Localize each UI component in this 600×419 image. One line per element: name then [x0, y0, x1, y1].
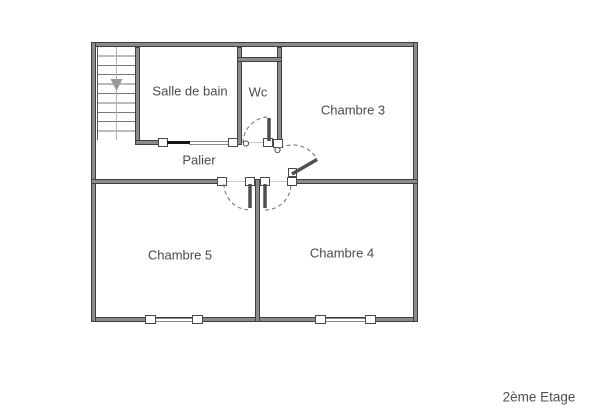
- bedroom-divider-wall: [255, 179, 260, 322]
- chambre5-door-opening: [226, 181, 246, 182]
- room-label-chambre-4: Chambre 4: [310, 246, 374, 261]
- wc-left-wall: [237, 47, 242, 145]
- window1-glass: [155, 318, 193, 322]
- chambre4-door-swing-arc: [265, 184, 291, 210]
- room-label-chambre-5: Chambre 5: [148, 248, 212, 263]
- window1-post-right: [192, 315, 203, 325]
- window2-post-left: [315, 315, 326, 325]
- chambre4-door-opening: [269, 181, 287, 182]
- chambre5-door-hinge-post: [245, 177, 255, 186]
- floor-title: 2ème Etage: [503, 390, 576, 405]
- room-label-palier: Palier: [182, 153, 215, 168]
- wc-right-wall: [277, 47, 282, 147]
- room-label-wc: Wc: [249, 85, 268, 100]
- chambre5-door-swing-arc: [224, 184, 250, 210]
- mid-wall-right: [293, 179, 418, 184]
- sliding-door-leaf: [167, 141, 190, 145]
- door-swings-overlay: [0, 0, 600, 419]
- chambre3-door-hinge-post: [288, 168, 297, 177]
- wc-duct-wall: [237, 57, 282, 62]
- chambre4-door-hinge-post: [260, 177, 270, 186]
- window2-glass: [325, 318, 366, 322]
- floor-plan-canvas: Salle de bain Wc Chambre 3 Palier Chambr…: [0, 0, 600, 419]
- wc-wall-end-post: [273, 139, 283, 148]
- chambre3-door-swing-arc: [280, 145, 317, 159]
- outer-wall-top: [91, 42, 418, 47]
- room-label-chambre-3: Chambre 3: [321, 103, 385, 118]
- mid-wall-left: [91, 179, 219, 184]
- sliding-door-post-right: [228, 138, 238, 148]
- wc-door-hinge-post: [263, 138, 273, 147]
- room-label-salle-de-bain: Salle de bain: [152, 84, 227, 99]
- window1-post-left: [145, 315, 156, 325]
- window2-post-right: [365, 315, 376, 325]
- mid-wall-jamb-right: [287, 177, 297, 186]
- staircase-right-wall: [135, 47, 140, 145]
- sliding-door-track: [189, 141, 229, 145]
- wc-door-opening: [246, 142, 264, 143]
- chambre3-door-pivot-dot: [275, 147, 280, 152]
- mid-wall-jamb-left: [217, 177, 227, 186]
- staircase-center-line: [116, 47, 117, 140]
